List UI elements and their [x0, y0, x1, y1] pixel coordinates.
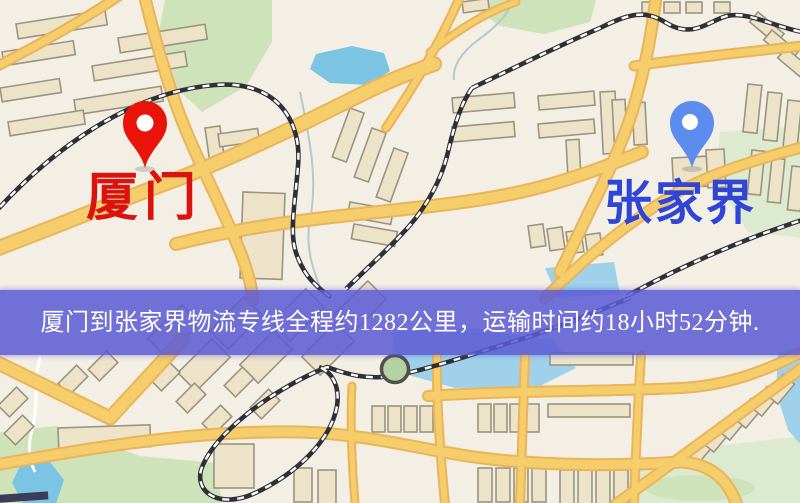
map-figure: 厦门 张家界 厦门到张家界物流专线全程约1282公里，运输时间约18小时52分钟… — [0, 0, 800, 503]
map-canvas — [0, 0, 800, 503]
origin-label: 厦门 — [86, 172, 202, 224]
route-banner: 厦门到张家界物流专线全程约1282公里，运输时间约18小时52分钟. — [0, 290, 800, 355]
roundabout — [382, 356, 409, 383]
route-banner-text: 厦门到张家界物流专线全程约1282公里，运输时间约18小时52分钟. — [0, 290, 800, 355]
destination-label: 张家界 — [604, 180, 757, 228]
